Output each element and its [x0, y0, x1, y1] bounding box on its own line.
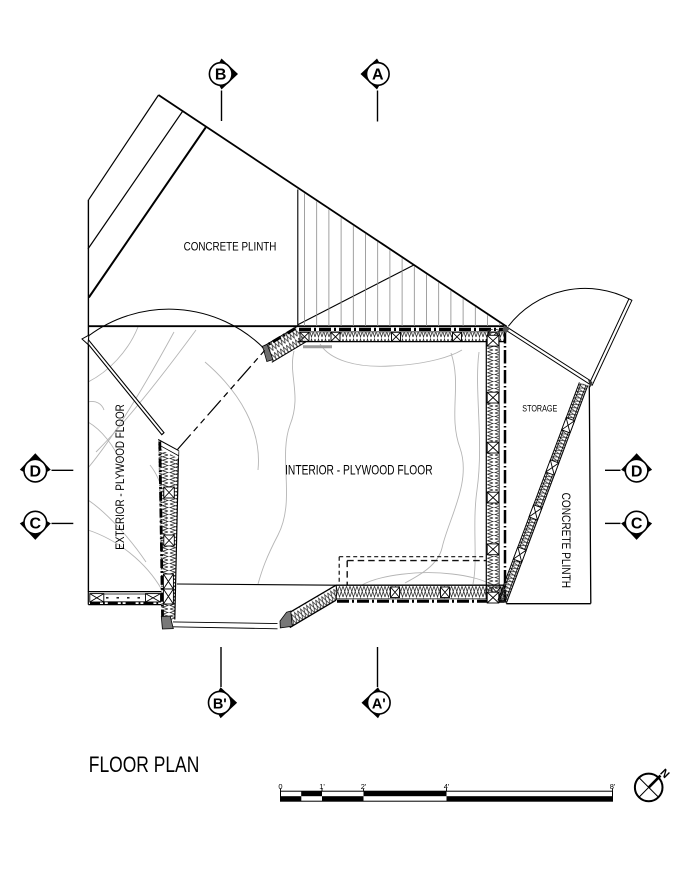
svg-text:INTERIOR - PLYWOOD FLOOR: INTERIOR - PLYWOOD FLOOR	[285, 462, 433, 478]
svg-text:B': B'	[213, 696, 227, 712]
svg-text:4': 4'	[444, 782, 450, 791]
svg-text:A: A	[372, 67, 384, 84]
svg-text:A': A'	[372, 696, 386, 712]
svg-text:CONCRETE PLINTH: CONCRETE PLINTH	[559, 493, 572, 588]
svg-text:1': 1'	[319, 782, 325, 791]
svg-text:FLOOR PLAN: FLOOR PLAN	[89, 752, 200, 777]
svg-text:CONCRETE PLINTH: CONCRETE PLINTH	[184, 241, 277, 254]
svg-text:EXTERIOR - PLYWOOD FLOOR: EXTERIOR - PLYWOOD FLOOR	[113, 404, 127, 550]
svg-text:2': 2'	[361, 782, 367, 791]
svg-text:C: C	[631, 515, 643, 532]
svg-text:C: C	[30, 515, 42, 532]
svg-text:D: D	[30, 463, 42, 480]
svg-text:0: 0	[278, 782, 282, 791]
svg-text:STORAGE: STORAGE	[522, 404, 557, 415]
svg-text:D: D	[631, 463, 643, 480]
svg-text:B: B	[215, 67, 227, 84]
svg-text:8': 8'	[610, 782, 616, 791]
